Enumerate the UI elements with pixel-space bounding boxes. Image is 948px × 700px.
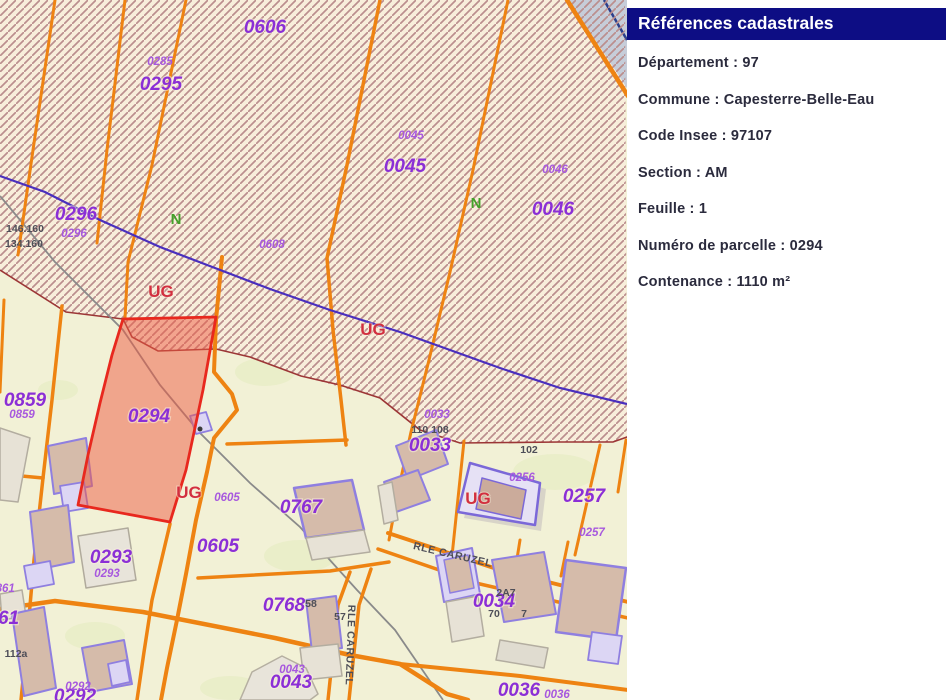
parcel-label-0292: 0292 [65,681,91,693]
parcel-label-0285: 0285 [147,56,173,68]
parcel-label-0861: 0861 [0,583,15,595]
panel-title: Références cadastrales [627,8,946,40]
parcel-label-112a: 112a [5,648,28,660]
cadastre-viewer: 0606029502960045004608590294029306050767… [0,0,948,700]
row-contenance: Contenance : 1110 m² [638,274,948,290]
parcel-label-0257: 0257 [579,527,605,539]
zone-ug-label: UG [176,483,202,502]
references-panel: Références cadastrales Département : 97 … [627,0,948,700]
parcel-label-0256: 0256 [509,472,535,484]
parcel-label-2A7: 2A7 [496,587,515,599]
parcel-label-0605: 0605 [197,536,240,557]
parcel-label-0605: 0605 [214,492,240,504]
row-feuille: Feuille : 1 [638,201,948,217]
zone-n-label: N [171,211,182,228]
zone-n-label: N [471,195,482,212]
parcel-label-57: 57 [334,611,346,623]
parcel-label-0046: 0046 [532,199,575,220]
row-section: Section : AM [638,165,948,181]
cadastre-map[interactable]: 0606029502960045004608590294029306050767… [0,0,627,700]
selected-parcel-label: 0294 [128,406,171,427]
parcel-label-0045: 0045 [398,130,424,142]
map-container: 0606029502960045004608590294029306050767… [0,0,627,700]
row-numero-parcelle: Numéro de parcelle : 0294 [638,238,948,254]
parcel-label-0257: 0257 [563,486,607,507]
zone-ug-label: UG [465,489,491,508]
parcel-label-0861: 0861 [0,608,19,629]
parcel-label-0033: 0033 [424,409,450,421]
parcel-label-146.160: 146.160 [6,223,44,235]
parcel-label-0033: 0033 [409,435,452,456]
parcel-label-0036: 0036 [544,689,570,700]
parcel-label-102: 102 [520,444,538,456]
parcel-label-0293: 0293 [94,568,120,580]
parcel-label-110-108: 110 108 [411,424,449,436]
row-commune: Commune : Capesterre-Belle-Eau [638,92,948,108]
zone-ug-label: UG [148,282,174,301]
parcel-label-0293: 0293 [90,547,133,568]
zone-ug-label: UG [360,320,386,339]
parcel-label-0295: 0295 [140,74,183,95]
parcel-label-0046: 0046 [542,164,568,176]
parcel-label-0045: 0045 [384,156,427,177]
parcel-label-0608: 0608 [259,239,285,251]
parcel-label-58: 58 [305,598,317,610]
parcel-label-70: 70 [488,608,500,620]
parcel-label-0768: 0768 [263,595,306,616]
row-code-insee: Code Insee : 97107 [638,128,948,144]
parcel-label-0043: 0043 [279,664,305,676]
parcel-label-0859: 0859 [9,409,35,421]
row-departement: Département : 97 [638,55,948,71]
parcel-label-0036: 0036 [498,680,541,700]
parcel-label-0606: 0606 [244,17,287,38]
parcel-label-7: 7 [521,608,527,620]
parcel-label-0859: 0859 [4,390,47,411]
parcel-label-0296: 0296 [55,204,98,225]
parcel-label-0296: 0296 [61,228,87,240]
parcel-label-134.160: 134.160 [5,238,43,250]
parcel-label-0767: 0767 [280,497,324,518]
